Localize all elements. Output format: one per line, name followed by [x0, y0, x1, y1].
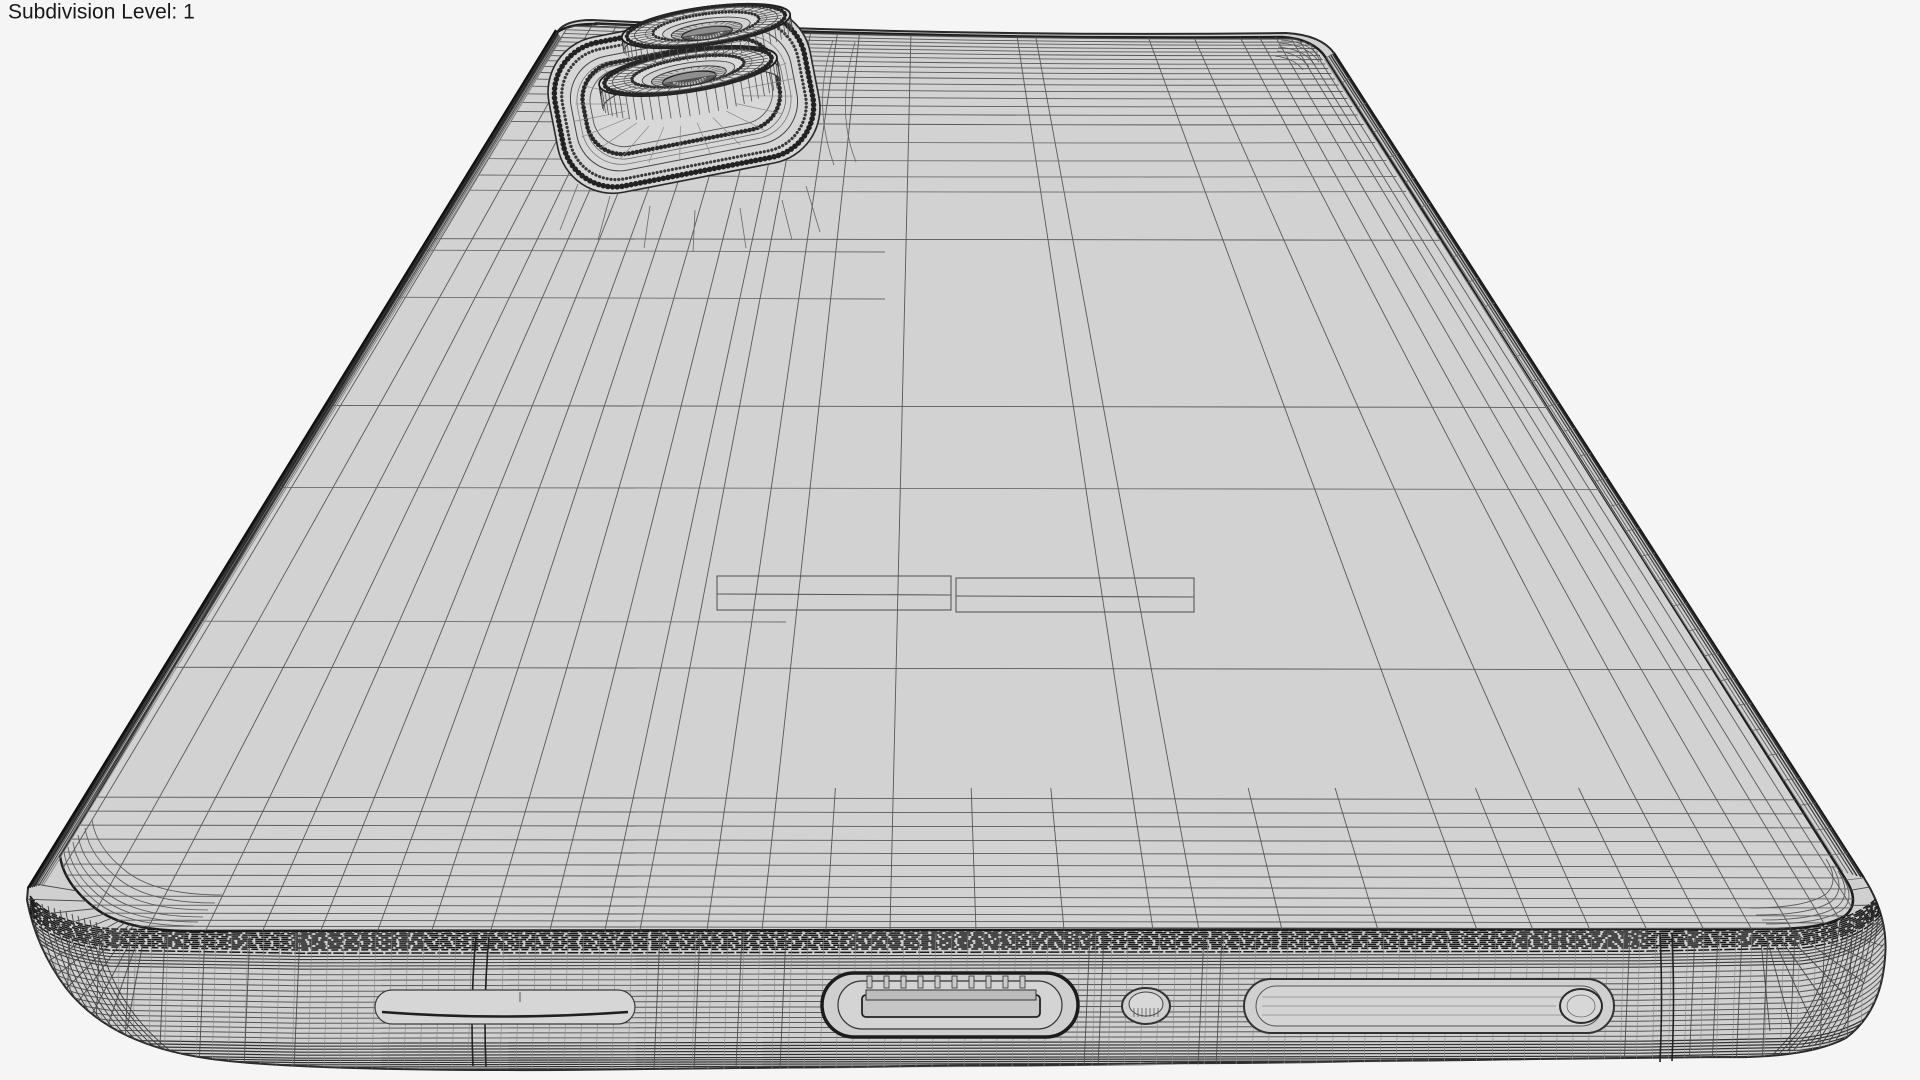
svg-text:Subdivision Level: 1: Subdivision Level: 1: [8, 1, 195, 24]
